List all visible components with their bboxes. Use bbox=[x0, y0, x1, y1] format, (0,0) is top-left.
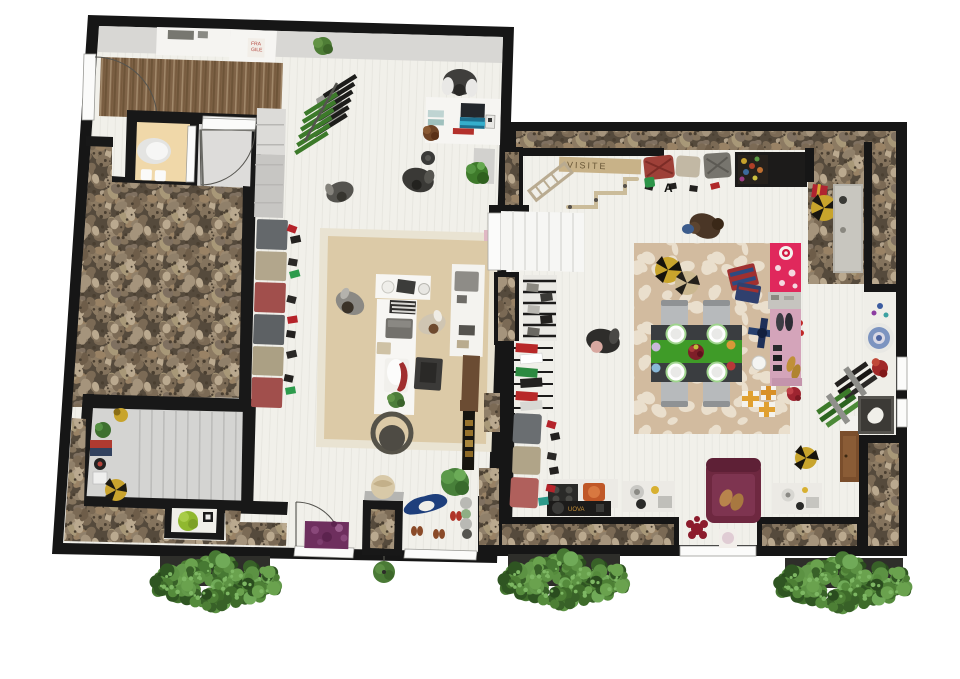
svg-text:A: A bbox=[664, 181, 673, 195]
svg-text:GILE: GILE bbox=[251, 47, 263, 53]
svg-text:UOVA: UOVA bbox=[568, 507, 585, 513]
svg-text:VISITE: VISITE bbox=[567, 160, 608, 171]
